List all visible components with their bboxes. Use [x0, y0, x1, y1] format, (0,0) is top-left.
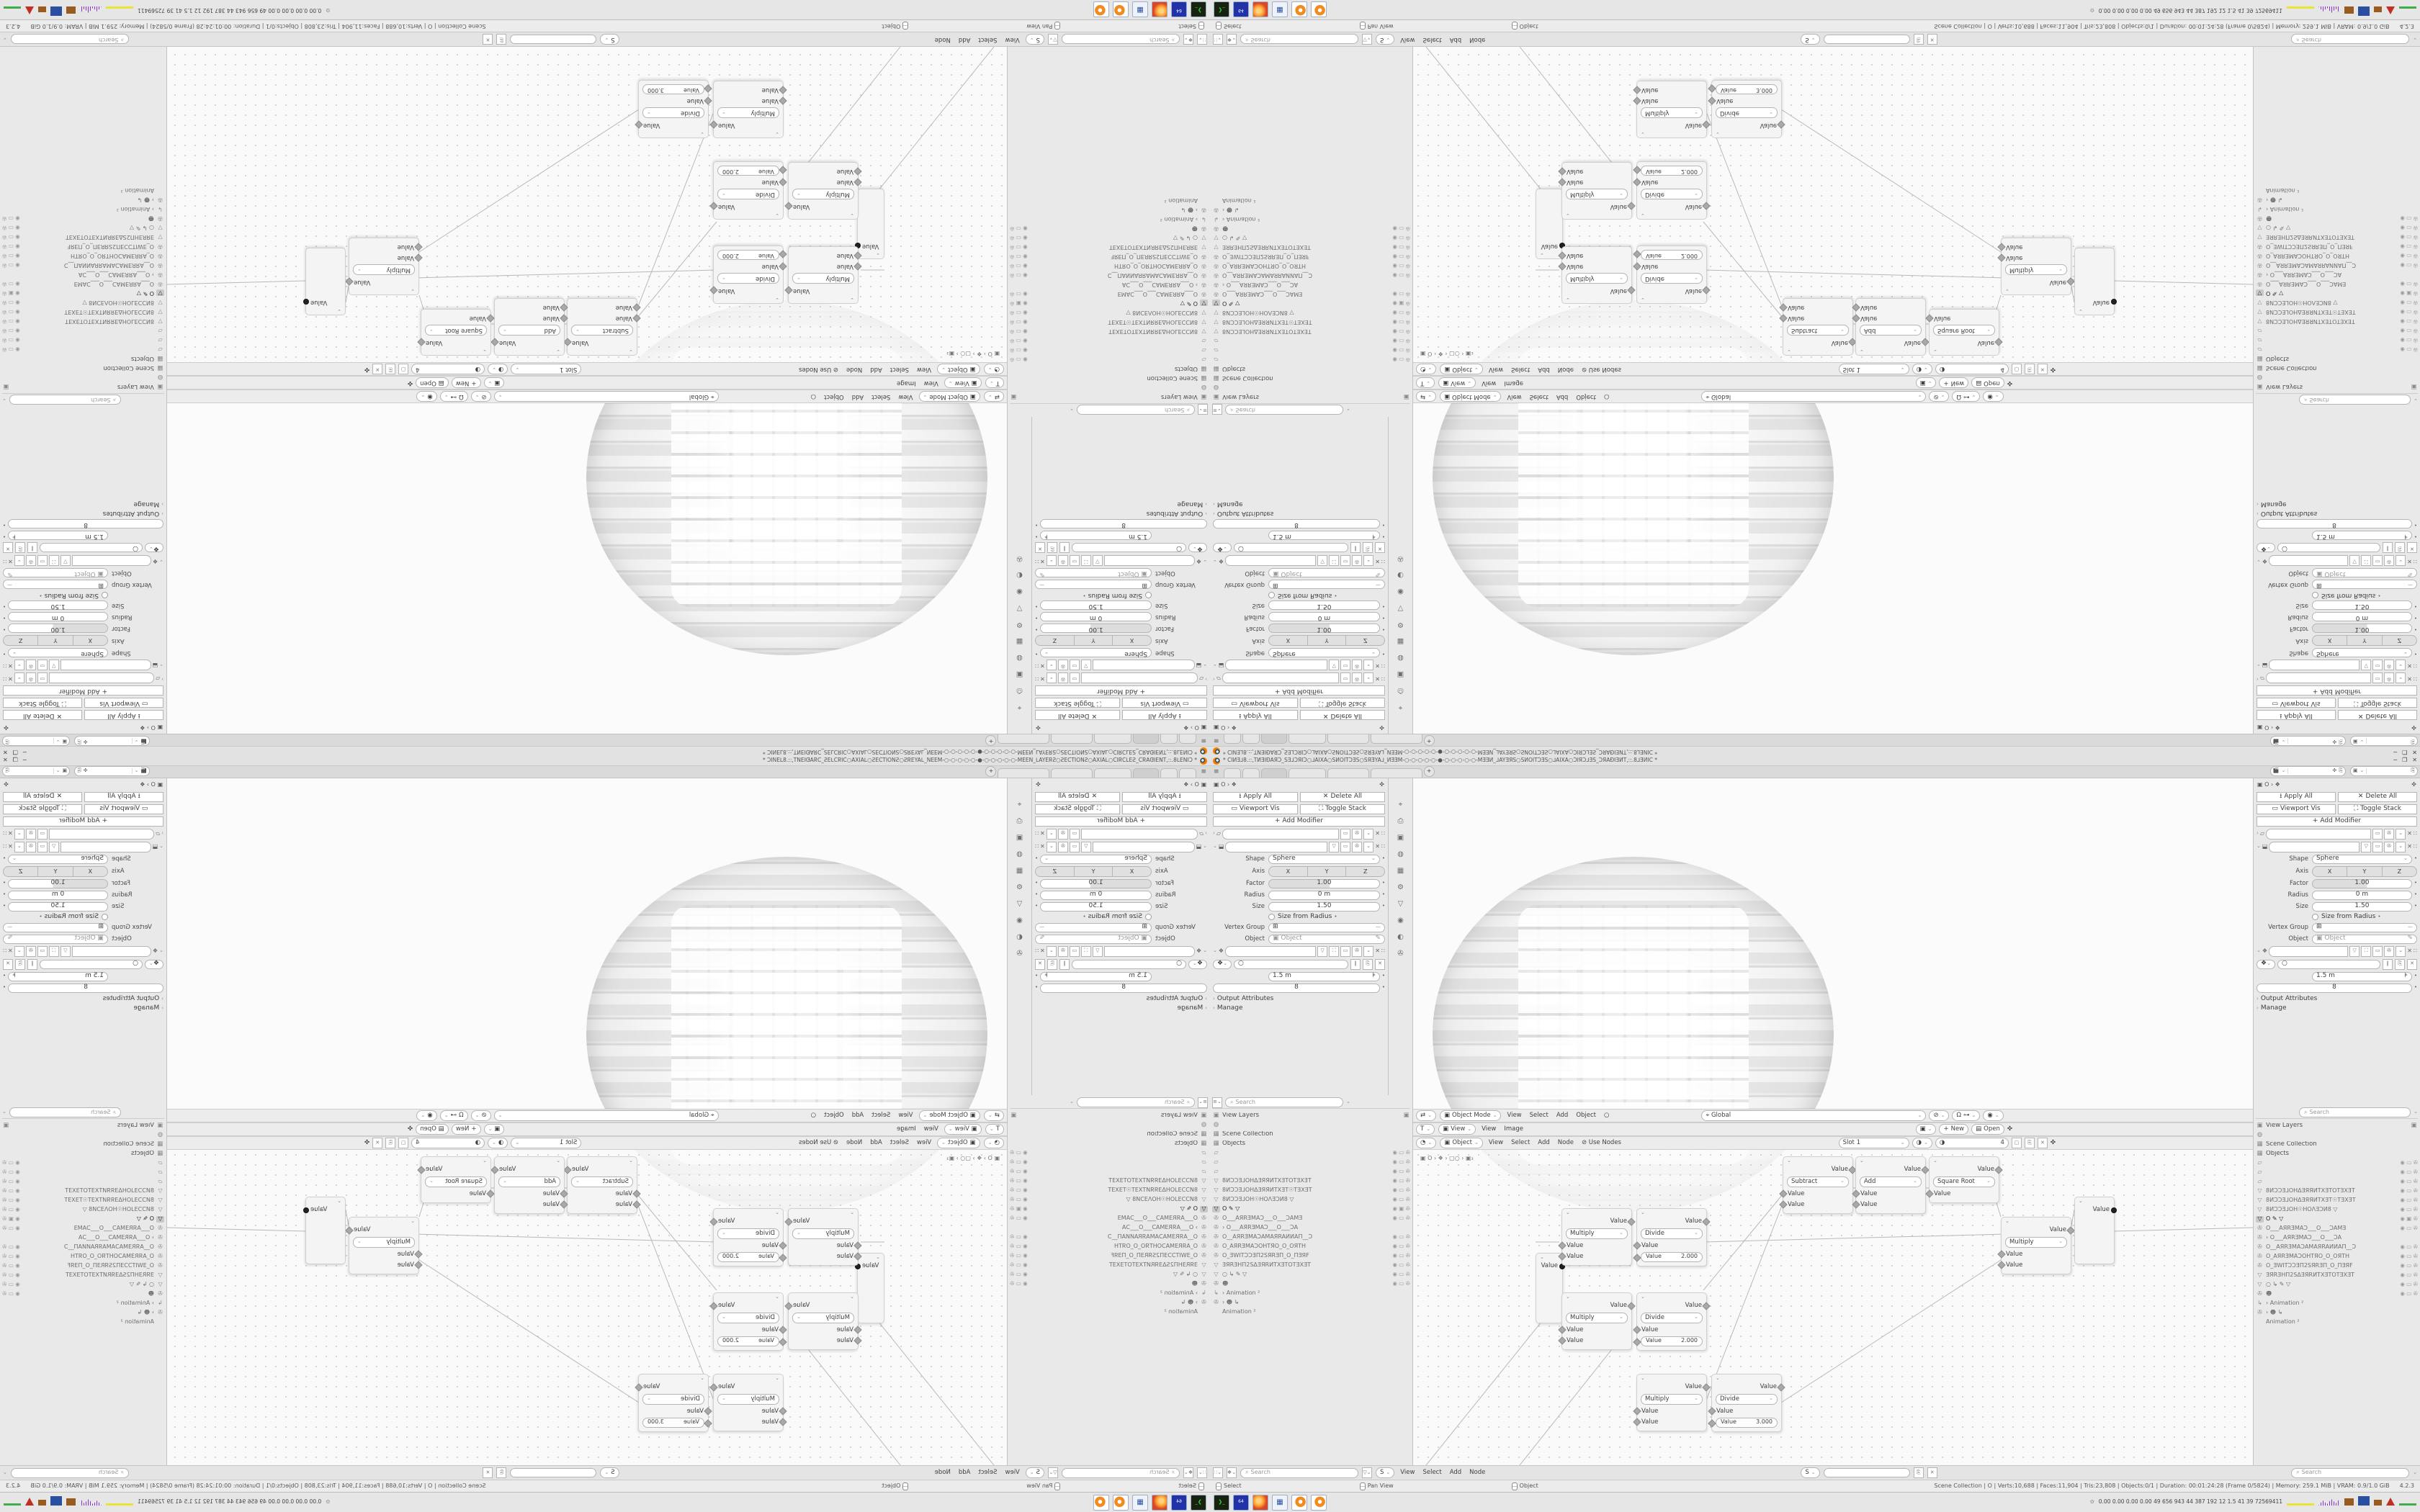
menu-select[interactable]: Select	[1528, 1112, 1551, 1119]
math-node[interactable]: ⌄ Value Square Root Clamp Value	[421, 1156, 491, 1203]
search-input[interactable]: ⌕Search	[1240, 35, 1358, 45]
menu-object[interactable]: Object	[822, 1112, 846, 1119]
outliner-item[interactable]: ↳› Animation ²	[2256, 1299, 2418, 1308]
remove-modifier-icon[interactable]: ✕	[1040, 557, 1045, 564]
outliner-item[interactable]: ✇› ☻ ↳	[1010, 1298, 1208, 1308]
node-tree-type[interactable]: ❖ ⌄	[1188, 543, 1207, 552]
filter-type-icon[interactable]: ❖⌄	[1183, 34, 1193, 45]
outliner-item[interactable]: ▽ƎЯRƎHΠ2SΔƎЯRИTXƎTOTƎXƎT◉ ▭ ✇	[2, 1271, 164, 1280]
modifier-slot[interactable]: ⌄⬓ ▽▭✇⌄ ✕∷	[1213, 660, 1385, 670]
menu-select[interactable]: Select	[888, 366, 911, 372]
editor-type-select[interactable]: T ⌄	[1416, 1124, 1435, 1135]
apply-all-button[interactable]: ⭳ Apply All	[2257, 710, 2336, 720]
minimize-button[interactable]: ─	[23, 748, 27, 755]
properties-tab-icon[interactable]: ◉	[1011, 914, 1028, 927]
value-field[interactable]: Value2.000	[1641, 1336, 1703, 1346]
outliner-item[interactable]: ▱◉ ▭ ✇	[1212, 354, 1410, 364]
outliner-item[interactable]: ↳› Animation ²	[1010, 214, 1208, 223]
radius-field[interactable]: 0 m	[1268, 891, 1380, 900]
editor-type-select[interactable]: S ⌄	[1026, 34, 1044, 45]
collapse-icon[interactable]: ⌄	[1562, 1210, 1631, 1216]
pin-icon[interactable]: ✜	[84, 738, 88, 744]
pin-icon[interactable]: ✜	[2332, 768, 2336, 774]
collapse-icon[interactable]: ⌄	[2002, 1219, 2071, 1225]
outliner-item[interactable]: ▽O ✎ ▽◉ ▣ ✇	[2256, 288, 2418, 297]
math-node[interactable]: ⌄ Value Multiply Clamp Value Value	[2001, 1217, 2071, 1274]
blender-app-icon[interactable]	[1291, 2, 1307, 18]
value-field[interactable]: Value2.000	[1641, 250, 1703, 260]
vertex-group-field[interactable]: ⊞—	[1268, 580, 1385, 589]
math-node[interactable]: ⌄ Value Add Clamp Value Value	[494, 1156, 565, 1214]
editor-type-select[interactable]: T ⌄	[985, 1124, 1004, 1135]
properties-tab-icon[interactable]: ⌖	[1011, 798, 1028, 811]
properties-tab-icon[interactable]: ◍	[1011, 848, 1028, 860]
add-modifier-button[interactable]: + Add Modifier	[3, 685, 163, 696]
outliner-item[interactable]: ✇O___AЯRƎMAƆ___O___ƆAMƎ◉ ▭ ✇	[2, 279, 164, 288]
object-field[interactable]: ▣ Object✎	[1268, 935, 1385, 944]
outliner-item[interactable]: ✇☻◉ ▭ ✇	[2256, 1290, 2418, 1299]
app-menu-icon[interactable]: ≡	[1214, 736, 1219, 743]
add-modifier-button[interactable]: + Add Modifier	[1035, 816, 1207, 827]
outliner-item[interactable]: ▽ƎЯRƎHΠ2SΔƎЯRИTXƎTOTƎXƎT◉ ▭ ✇	[1010, 242, 1208, 251]
math-node[interactable]: ⌄ Value Divide Clamp Value Value3.000	[638, 1374, 709, 1432]
scene-collection-row[interactable]: Scene Collection	[1222, 1131, 1410, 1138]
properties-tab-icon[interactable]: ▣	[1011, 668, 1028, 680]
radius-field[interactable]: 0 m	[1040, 891, 1152, 900]
material-name-field[interactable]: ◑4	[1935, 364, 2009, 374]
workspace-tab[interactable]	[1242, 768, 1260, 778]
math-node[interactable]: ⌄ Value	[857, 1253, 884, 1323]
collapse-icon[interactable]: ⌄	[714, 296, 783, 302]
menu-view[interactable]: View	[1398, 36, 1417, 42]
shader-mode-select[interactable]: ▣ Object ⌄	[1440, 1138, 1483, 1148]
operation-select[interactable]: Divide	[642, 107, 704, 118]
operation-select[interactable]: Divide	[1641, 1313, 1703, 1323]
modifier-slot[interactable]: ⌄⬓ ▽▭✇⌄ ✕∷	[1035, 842, 1207, 852]
workspace-tab-active[interactable]	[1133, 768, 1159, 778]
axis-toggle[interactable]: XYZ	[1035, 866, 1152, 877]
properties-tab-icon[interactable]: ⌖	[1011, 701, 1028, 714]
display-mode-icon[interactable]: ≡⌄	[1198, 1097, 1208, 1108]
shape-select[interactable]: Sphere⌄	[1040, 855, 1152, 864]
menu-add[interactable]: Add	[850, 1112, 866, 1119]
math-node[interactable]: ⌄ Value Multiply Clamp Value Value	[788, 246, 859, 304]
outliner-item[interactable]: ✇O_AЯRƎMAƆOHTЯO_O_OЯTH◉ ▭ ✇	[1212, 1242, 1410, 1251]
math-node[interactable]: ⌄ Value Multiply Clamp Value Value	[1561, 1208, 1632, 1266]
outliner-item[interactable]: ✇O__AЯRƎMAƆAMAЯRAИИAΠ__Ɔ◉ ▭ ✇	[1212, 1233, 1410, 1242]
properties-tab-icon[interactable]: ▦	[1392, 865, 1410, 877]
image-browse-select[interactable]: ▣ ⌄	[1916, 377, 1937, 388]
outliner-item[interactable]: ✇O_AЯRƎMAƆOHTЯO_O_OЯTH◉ ▭ ✇	[1010, 1242, 1208, 1251]
remove-modifier-icon[interactable]: ✕	[1040, 948, 1045, 955]
menu-view[interactable]: View	[1505, 1112, 1523, 1119]
outliner-item[interactable]: ▱◉ ▭ ✇	[2, 1158, 164, 1168]
material-browse-select[interactable]: ◑ ⌄	[1912, 1138, 1932, 1148]
editor-type-select[interactable]: ◔ ⌄	[1416, 1138, 1436, 1148]
outliner-item[interactable]: ✇O_ƎWITƆƆƎΠ2SЯRƎΠ_O_ΠƎЯF◉ ▭ ✇	[1010, 251, 1208, 261]
material-browse-select[interactable]: ◑ ⌄	[488, 1138, 508, 1148]
collapse-icon[interactable]: ⌄	[1637, 130, 1706, 136]
workspace-tab-active[interactable]	[1133, 734, 1159, 744]
apply-all-button[interactable]: ⭳ Apply All	[1213, 792, 1298, 802]
menu-select[interactable]: Select	[1509, 366, 1532, 372]
collapse-icon[interactable]: ⌄	[1930, 1158, 1999, 1164]
outliner-item[interactable]: ▽8ИƆƆƎ⅃OHΔƎЯЯИTXƎTOTƎXƎT◉ ▭ ✇	[2, 1187, 164, 1196]
properties-tab-icon[interactable]: ⚙	[1392, 881, 1410, 894]
collapse-icon[interactable]: ⌄	[1562, 212, 1631, 217]
add-workspace-button[interactable]: +	[1424, 766, 1435, 777]
radius-field[interactable]: 0 m	[1040, 612, 1152, 621]
outliner-item[interactable]: ▽8ИƆƆƎ⅃OHΔƎЯЯИTXƎT☉TƎXƎT◉ ▭ ✇	[1212, 317, 1410, 326]
gn-count-field[interactable]: 8	[1040, 984, 1207, 993]
math-node[interactable]: ⌄ Value Subtract Clamp Value Value	[567, 1156, 637, 1214]
delete-all-button[interactable]: ✕ Delete All	[3, 710, 82, 720]
collapse-icon[interactable]: ⌄	[495, 1158, 564, 1164]
menu-object[interactable]: Object	[1574, 393, 1598, 400]
open-image-button[interactable]: ▤ Open	[1971, 377, 2004, 388]
math-node[interactable]: ⌄ Value Multiply Clamp Value Value	[1561, 1292, 1632, 1350]
scene-selector[interactable]: 🎬⌄ ✜ ⎘	[74, 766, 150, 776]
display-mode-icon[interactable]: ∷⌄	[1213, 34, 1223, 45]
collapse-icon[interactable]: ⌄	[1637, 1376, 1706, 1382]
outliner-item[interactable]: ▽8ИƆƆƎ⅃OHΔƎЯЯИTXƎTOTƎXƎT◉ ▭ ✇	[1212, 326, 1410, 336]
node-tree-field[interactable]: ○	[1072, 960, 1186, 969]
outliner-item[interactable]: ✇O___AЯRƎMAƆ___O___ƆAMƎ◉ ▭ ✇	[1212, 289, 1410, 298]
menu-select[interactable]: Select	[1509, 1140, 1532, 1146]
outliner-item[interactable]: ✇☻◉ ▭ ✇	[1010, 1279, 1208, 1289]
view-layer-selector[interactable]: ▣⌄ ⎘	[2350, 766, 2418, 776]
menu-view[interactable]: View	[922, 1126, 941, 1133]
menu-add[interactable]: Add	[868, 366, 884, 372]
menu-add[interactable]: Add	[956, 36, 972, 42]
outliner-item[interactable]: ▱◉ ▭ ✇	[2256, 325, 2418, 335]
display-mode-icon[interactable]: ≡⌄	[1212, 405, 1222, 415]
close-button[interactable]: ✕	[3, 757, 8, 764]
firefox-icon[interactable]	[1152, 1495, 1168, 1511]
math-node[interactable]: ⌄ Value Multiply Clamp Value Value	[1636, 81, 1707, 138]
outliner-item[interactable]: ↳› Animation ²	[1212, 1289, 1410, 1298]
properties-tab-icon[interactable]: ◍	[1011, 652, 1028, 664]
save-app-icon[interactable]: 64	[1171, 1495, 1187, 1511]
transform-orientation-select[interactable]: ⌖ Global⌄	[1701, 1110, 1926, 1121]
collapse-icon[interactable]: ⌄	[1637, 1295, 1706, 1300]
manage-panel[interactable]: Manage	[1217, 500, 1243, 508]
collapse-icon[interactable]: ⌄	[2002, 287, 2071, 293]
outliner-item[interactable]: ✇› ☻ ↳	[2, 1308, 164, 1318]
menu-node[interactable]: Node	[1556, 1140, 1576, 1146]
collapse-icon[interactable]: ⌄	[1783, 348, 1852, 354]
scene-selector[interactable]: 🎬⌄ ✜ ⎘	[2270, 736, 2346, 746]
outliner-item[interactable]: ▱◉ ▭ ✇	[2, 1168, 164, 1177]
slot-select[interactable]: Slot 1⌄	[1839, 364, 1909, 374]
properties-tab-icon[interactable]: ◐	[1011, 569, 1028, 581]
objects-collection-row[interactable]: Objects	[1010, 365, 1198, 372]
operation-select[interactable]: Add	[1860, 325, 1922, 336]
output-attributes-panel[interactable]: Output Attributes	[1217, 996, 1274, 1003]
workspace-tab[interactable]	[1327, 734, 1369, 744]
outliner-item[interactable]: ✇☻◉ ▭ ✇	[1212, 223, 1410, 233]
gn-count-field[interactable]: 8	[1213, 984, 1380, 993]
calculator-icon[interactable]: ▦	[1132, 2, 1148, 18]
outliner-item[interactable]: ▱◉ ▭ ✇	[1212, 345, 1410, 354]
math-node[interactable]: ⌄ Value Subtract Clamp Value Value	[1783, 298, 1853, 356]
collapse-icon[interactable]: ⌄	[568, 348, 637, 354]
menu-view[interactable]: View	[1003, 36, 1022, 42]
value-field[interactable]: Value3.000	[642, 1418, 704, 1428]
firefox-icon[interactable]	[1152, 2, 1168, 18]
display-mode-icon[interactable]: ∷⌄	[1213, 1467, 1223, 1478]
operation-select[interactable]: Multiply	[792, 189, 854, 199]
blender-app-icon[interactable]	[1113, 2, 1129, 18]
mode-select[interactable]: ▣ Object Mode ⌄	[919, 391, 980, 402]
remove-modifier-icon[interactable]: ✕	[1375, 675, 1380, 681]
output-attributes-panel[interactable]: Output Attributes	[1147, 996, 1204, 1003]
node-tree-type[interactable]: ❖ ⌄	[1213, 960, 1232, 969]
toggle-stack-button[interactable]: ⛶ Toggle Stack	[1300, 698, 1385, 708]
math-node[interactable]: ⌄ Value Divide Clamp Value Value3.000	[638, 80, 709, 138]
properties-tab-icon[interactable]: ▽	[1011, 602, 1028, 614]
outliner-item[interactable]: ▽ƎЯRƎHΠ2SΔƎЯRИTXƎTOTƎXƎT◉ ▭ ✇	[2256, 232, 2418, 241]
outliner-item[interactable]: ▽O ✎ ▽◉ ▣ ✇	[1010, 298, 1208, 307]
scene-collection-row[interactable]: Scene Collection	[1010, 1131, 1198, 1138]
operation-select[interactable]: Divide	[717, 1228, 779, 1239]
axis-toggle[interactable]: XYZ	[1035, 635, 1152, 646]
collapse-icon[interactable]: ⌄	[714, 130, 783, 136]
delete-all-button[interactable]: ✕ Delete All	[1300, 710, 1385, 720]
menu-view[interactable]: View	[915, 1140, 933, 1146]
menu-view[interactable]: View	[1487, 366, 1505, 372]
snap-toggle[interactable]: ⊘ ⌄	[1929, 1110, 1949, 1121]
properties-tab-icon[interactable]: ▽	[1011, 898, 1028, 910]
nodes-modifier-slot[interactable]: ⌄❖ ▽⛶▭✇⌄ ✕∷	[1213, 946, 1385, 957]
properties-tab-icon[interactable]: ◉	[1392, 914, 1410, 927]
outliner-item[interactable]: Animation ²	[1010, 195, 1208, 204]
firefox-icon[interactable]	[1252, 2, 1268, 18]
scene-collection-row[interactable]: Scene Collection	[1222, 374, 1410, 381]
math-node[interactable]: ⌄ Value Divide Clamp Value Value3.000	[1711, 80, 1782, 138]
display-mode-icon[interactable]: ∷⌄	[1197, 34, 1207, 45]
value-field[interactable]: Value2.000	[1641, 1252, 1703, 1262]
outliner-item[interactable]: ▽○ ↳ ✎ ▽◉ ▭ ✇	[2, 222, 164, 232]
toggle-stack-button[interactable]: ⛶ Toggle Stack	[1035, 804, 1120, 814]
outliner-item[interactable]: ✇› ☻ ↳	[2256, 1308, 2418, 1318]
mode-select[interactable]: ▣ Object Mode ⌄	[1440, 1110, 1501, 1121]
outliner-item[interactable]: ✇O__AЯRƎMAƆAMAЯRAИИAΠ__Ɔ◉ ▭ ✇	[2, 260, 164, 269]
workspace-tab[interactable]	[1289, 734, 1326, 744]
image-mode-select[interactable]: ▣ View ⌄	[1438, 1124, 1476, 1135]
outliner-item[interactable]: ✇O_ƎWITƆƆƎΠ2SЯRƎΠ_O_ΠƎЯF◉ ▭ ✇	[1212, 251, 1410, 261]
math-node[interactable]: ⌄ Value	[2074, 1197, 2115, 1264]
outliner-item[interactable]: ▽8ИƆƆƎ⅃OH☉HOΛƎƆИ8 ▽◉ ▭ ✇	[1010, 1195, 1208, 1205]
operation-select[interactable]: Multiply	[792, 273, 854, 284]
properties-tab-icon[interactable]: ✇	[1392, 552, 1410, 564]
outliner-item[interactable]: ▽8ИƆƆƎ⅃OHΔƎЯЯИTXƎT☉TƎXƎT◉ ▭ ✇	[1010, 317, 1208, 326]
operation-select[interactable]: Square Root	[425, 325, 487, 336]
math-node[interactable]: ⌄ Value Multiply Clamp Value Value	[713, 81, 784, 138]
outliner-item[interactable]: ✇› ☻ ↳	[1212, 204, 1410, 214]
menu-view[interactable]: View	[1505, 393, 1523, 400]
operation-select[interactable]: Add	[498, 1176, 560, 1187]
outliner-item[interactable]: ▱◉ ▭ ✇	[1010, 1148, 1208, 1158]
outliner-item[interactable]: ✇O_ƎWITƆƆƎΠ2SЯRƎΠ_O_ΠƎЯF◉ ▭ ✇	[2256, 241, 2418, 251]
view-layers-row[interactable]: View Layers	[1222, 1112, 1400, 1119]
output-attributes-panel[interactable]: Output Attributes	[1217, 509, 1274, 516]
pin-icon[interactable]: ✜	[2007, 1126, 2012, 1133]
snap-toggle[interactable]: ⊘ ⌄	[471, 391, 491, 402]
outliner-item[interactable]: ▽8ИƆƆƎ⅃OH☉HOΛƎƆИ8 ▽◉ ▭ ✇	[2, 1205, 164, 1215]
outliner-search[interactable]: ⌕Search	[9, 1107, 121, 1117]
collapse-icon[interactable]: ⌄	[1930, 348, 1999, 354]
search-input[interactable]: ⌕Search	[11, 35, 129, 45]
menu-view[interactable]: View	[1479, 1126, 1498, 1133]
close-button[interactable]: ✕	[2412, 757, 2417, 764]
operation-select[interactable]: Divide	[1641, 273, 1703, 284]
outliner-item[interactable]: ↳› Animation ²	[2, 204, 164, 213]
menu-select[interactable]: Select	[888, 1140, 911, 1146]
properties-tab-icon[interactable]: ▣	[1392, 668, 1410, 680]
operation-select[interactable]: Subtract	[1787, 325, 1849, 336]
properties-tab-icon[interactable]: ⎙	[1392, 685, 1410, 697]
factor-field[interactable]: 1.00	[1040, 624, 1152, 633]
properties-tab-icon[interactable]: ▦	[1392, 635, 1410, 647]
workspace-tab[interactable]	[1224, 734, 1241, 744]
workspace-tab[interactable]	[1289, 768, 1326, 778]
collapse-icon[interactable]: ⌄	[2075, 1199, 2114, 1205]
material-name-field[interactable]: ◑4	[411, 364, 485, 374]
outliner-item[interactable]: ▽8ИƆƆƎ⅃OHΔƎЯЯИTXƎT☉TƎXƎT◉ ▭ ✇	[2, 1196, 164, 1205]
value-field[interactable]: Value3.000	[642, 84, 704, 94]
gn-scale-field[interactable]: 1.5 m⊧	[1040, 531, 1152, 540]
shader-mode-select[interactable]: ▣ Object ⌄	[937, 364, 980, 374]
outliner-item[interactable]: ✇O___AЯRƎMAƆ___O___ƆAMƎ◉ ▭ ✇	[1010, 1214, 1208, 1223]
objects-collection-row[interactable]: Objects	[1222, 1140, 1410, 1147]
open-image-button[interactable]: ▤ Open	[416, 1124, 449, 1135]
outliner-item[interactable]: Animation ²	[2, 185, 164, 194]
outliner-item[interactable]: ✇☻◉ ▭ ✇	[2, 1290, 164, 1299]
material-browse-select[interactable]: ◑ ⌄	[488, 364, 508, 374]
toggle-stack-button[interactable]: ⛶ Toggle Stack	[2338, 698, 2417, 708]
math-node[interactable]: ⌄ Value Multiply Clamp Value Value	[2001, 238, 2071, 295]
add-modifier-button[interactable]: + Add Modifier	[1213, 816, 1385, 827]
operation-select[interactable]: Multiply	[1566, 1313, 1628, 1323]
value-field[interactable]: Value2.000	[1641, 166, 1703, 176]
node-tree-type-select[interactable]: S ⌄	[1801, 1467, 1819, 1478]
new-image-button[interactable]: + New	[452, 1124, 481, 1135]
outliner-item[interactable]: ▽O ✎ ▽◉ ▣ ✇	[1010, 1205, 1208, 1214]
outliner-search[interactable]: ⌕Search	[1077, 405, 1195, 415]
terminal-icon[interactable]: ❯_	[1214, 2, 1229, 18]
node-tree-type[interactable]: ❖ ⌄	[1188, 960, 1207, 969]
outliner-item[interactable]: ▱◉ ▭ ✇	[2, 325, 164, 335]
axis-toggle[interactable]: XYZ	[1268, 866, 1385, 877]
apply-all-button[interactable]: ⭳ Apply All	[1122, 792, 1207, 802]
search-input[interactable]: ⌕Search	[1240, 1468, 1358, 1478]
outliner-item[interactable]: ▱◉ ▭ ✇	[1010, 345, 1208, 354]
remove-modifier-icon[interactable]: ✕	[1040, 662, 1045, 668]
workspace-tab[interactable]	[1160, 768, 1178, 778]
proportional-edit-toggle[interactable]: ◉ ⌄	[416, 391, 436, 402]
properties-tab-icon[interactable]: ◉	[1011, 585, 1028, 598]
funnel-icon[interactable]: ▽⌄	[1048, 1467, 1058, 1478]
properties-tab-icon[interactable]: ▽	[1392, 898, 1410, 910]
open-image-button[interactable]: ▤ Open	[416, 377, 449, 388]
operation-select[interactable]: Multiply	[2005, 1237, 2067, 1248]
math-node[interactable]: ⌄ Value	[305, 1197, 346, 1264]
app-menu-icon[interactable]: ≡	[1201, 769, 1206, 776]
editor-type-select[interactable]: S ⌄	[1376, 1467, 1394, 1478]
nodes-modifier-slot[interactable]: ⌄❖ ▽⛶▭✇⌄ ✕∷	[1035, 555, 1207, 566]
funnel-icon[interactable]: ▽⌄	[1048, 34, 1058, 45]
menu-node[interactable]: Node	[933, 1470, 953, 1476]
filter-type-icon[interactable]: ❖⌄	[1227, 1467, 1237, 1478]
outliner-item[interactable]: ▽8ИƆƆƎ⅃OH☉HOΛƎƆИ8 ▽◉ ▭ ✇	[1010, 307, 1208, 317]
outliner-item[interactable]: ✇› O___AЯRƎMAƆ___O___ƆA	[1010, 279, 1208, 289]
magnet-icon[interactable]: Ω ⊶ ⌄	[1952, 1110, 1980, 1121]
math-node[interactable]: ⌄ Value	[857, 189, 884, 259]
blender-app-icon[interactable]	[1291, 1495, 1307, 1511]
image-mode-select[interactable]: ▣ View ⌄	[944, 1124, 982, 1135]
outliner-item[interactable]: Animation ²	[1212, 1308, 1410, 1317]
workspace-tab[interactable]	[998, 768, 1049, 778]
menu-node[interactable]: Node	[1467, 1470, 1487, 1476]
outliner-item[interactable]: ▽O ✎ ▽◉ ▣ ✇	[2256, 1215, 2418, 1224]
viewport-vis-button[interactable]: ▭ Viewport Vis	[2257, 698, 2336, 708]
copy-icon[interactable]: ⎘	[77, 768, 81, 774]
modifier-slot[interactable]: ⌄⬓ ▽▭✇⌄ ✕∷	[1213, 842, 1385, 852]
math-node[interactable]: ⌄ Value	[1536, 189, 1563, 259]
toggle-stack-button[interactable]: ⛶ Toggle Stack	[1035, 698, 1120, 708]
editor-type-select[interactable]: ◔ ⌄	[984, 1138, 1004, 1148]
outliner-item[interactable]: ▱◉ ▭ ✇	[1010, 336, 1208, 345]
image-browse-select[interactable]: ▣ ⌄	[484, 1124, 505, 1135]
operation-select[interactable]: Multiply	[1641, 1394, 1703, 1405]
outliner-item[interactable]: Animation ²	[1212, 195, 1410, 204]
delete-all-button[interactable]: ✕ Delete All	[3, 792, 82, 802]
blender-app-icon[interactable]	[1093, 2, 1109, 18]
value-field[interactable]: Value2.000	[717, 1336, 779, 1346]
menu-view[interactable]: View	[915, 366, 933, 372]
collapse-icon[interactable]: ⌄	[1783, 1158, 1852, 1164]
remove-modifier-icon[interactable]: ✕	[1040, 831, 1045, 837]
menu-add[interactable]: Add	[1448, 1470, 1464, 1476]
menu-select[interactable]: Select	[869, 1112, 892, 1119]
object-field[interactable]: ▣ Object✎	[1035, 568, 1152, 577]
minimize-button[interactable]: ─	[2393, 748, 2397, 755]
factor-field[interactable]: 1.00	[1268, 879, 1380, 888]
outliner-item[interactable]: ▽8ИƆƆƎ⅃OH☉HOΛƎƆИ8 ▽◉ ▭ ✇	[2256, 297, 2418, 307]
magnet-icon[interactable]: Ω ⊶ ⌄	[1952, 391, 1980, 402]
shape-select[interactable]: Sphere⌄	[1268, 648, 1380, 657]
properties-tab-icon[interactable]: ▣	[1392, 832, 1410, 844]
math-node[interactable]: ⌄ Value Multiply Clamp Value Value	[1636, 1374, 1707, 1431]
menu-view[interactable]: View	[896, 393, 915, 400]
properties-tab-icon[interactable]: ⎙	[1011, 815, 1028, 827]
transform-orientation-select[interactable]: ⌖ Global⌄	[494, 1110, 719, 1121]
blender-app-icon[interactable]	[1311, 2, 1327, 18]
object-field[interactable]: ▣ Object✎	[1268, 568, 1385, 577]
collapse-icon[interactable]: ⌄	[349, 1219, 418, 1225]
operation-select[interactable]: Multiply	[1641, 107, 1703, 118]
menu-object[interactable]: Object	[1574, 1112, 1598, 1119]
snap-toggle[interactable]: ⊘ ⌄	[471, 1110, 491, 1121]
scene-collection-row[interactable]: Scene Collection	[1010, 374, 1198, 381]
menu-add[interactable]: Add	[1554, 393, 1570, 400]
outliner-item[interactable]: ✇O_ƎWITƆƆƎΠ2SЯRƎΠ_O_ΠƎЯF◉ ▭ ✇	[1010, 1251, 1208, 1261]
outliner-item[interactable]: ✇O_ƎWITƆƆƎΠ2SЯRƎΠ_O_ΠƎЯF◉ ▭ ✇	[2, 1261, 164, 1271]
outliner-item[interactable]: ▽O ✎ ▽◉ ▣ ✇	[2, 288, 164, 297]
viewport-vis-button[interactable]: ▭ Viewport Vis	[2257, 804, 2336, 814]
math-node[interactable]: ⌄ Value Divide Clamp Value Value2.000	[1636, 1208, 1707, 1266]
